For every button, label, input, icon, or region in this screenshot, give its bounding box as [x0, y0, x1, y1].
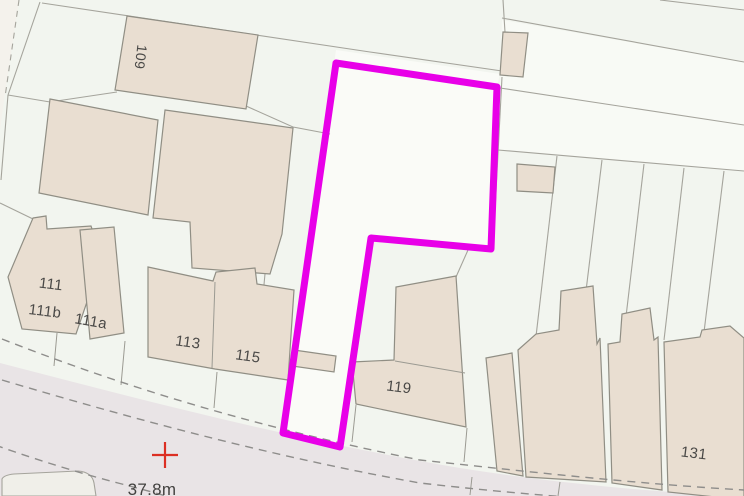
- traffic-island: [2, 471, 96, 496]
- label-119: 119: [385, 378, 412, 398]
- site-plan-svg: 109 111 111b 111a 113 115 119 131 37.8m: [0, 0, 744, 496]
- outbuilding-north-2: [517, 164, 555, 193]
- map-canvas[interactable]: 109 111 111b 111a 113 115 119 131 37.8m: [0, 0, 744, 496]
- outbuilding-north-1: [500, 32, 528, 77]
- label-spot-height: 37.8m: [128, 480, 177, 496]
- label-113: 113: [174, 332, 201, 352]
- terrace-unit-131: [664, 326, 744, 496]
- label-115: 115: [234, 346, 261, 366]
- label-109: 109: [132, 44, 151, 70]
- label-131: 131: [680, 443, 708, 463]
- label-111: 111: [38, 275, 64, 295]
